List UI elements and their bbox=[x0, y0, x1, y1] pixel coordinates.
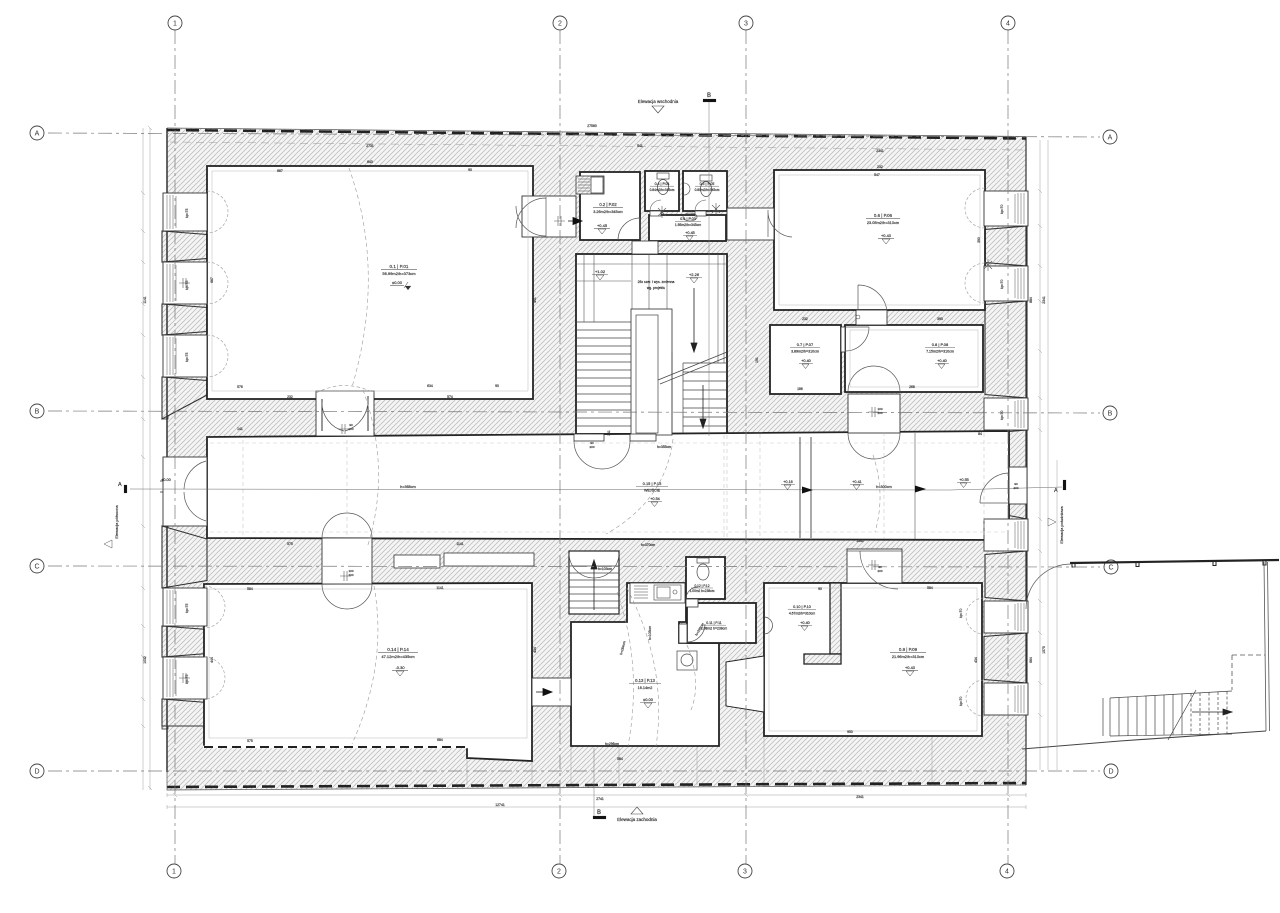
svg-text:0.80m2/h=345cm: 0.80m2/h=345cm bbox=[695, 188, 720, 192]
svg-text:200: 200 bbox=[877, 411, 882, 415]
svg-text:B: B bbox=[597, 810, 601, 816]
svg-text:±0.00: ±0.00 bbox=[392, 280, 403, 285]
svg-text:90: 90 bbox=[818, 587, 822, 591]
svg-text:0.10 | P.10: 0.10 | P.10 bbox=[793, 605, 811, 609]
svg-text:1141: 1141 bbox=[436, 586, 443, 590]
svg-text:1.95m2/h=345cm: 1.95m2/h=345cm bbox=[675, 223, 701, 227]
svg-text:kp=70: kp=70 bbox=[959, 609, 963, 618]
svg-text:0.14 | P.14: 0.14 | P.14 bbox=[387, 647, 409, 652]
svg-text:0.5 | P.05: 0.5 | P.05 bbox=[700, 182, 715, 186]
svg-text:191: 191 bbox=[755, 357, 759, 363]
svg-text:47.12m2/h=435cm: 47.12m2/h=435cm bbox=[381, 654, 415, 659]
svg-text:A: A bbox=[1054, 488, 1058, 494]
svg-text:h=296cm: h=296cm bbox=[605, 742, 619, 746]
svg-text:+0.40: +0.40 bbox=[881, 233, 892, 238]
svg-text:390: 390 bbox=[977, 237, 981, 243]
svg-text:186: 186 bbox=[797, 387, 803, 391]
svg-text:575: 575 bbox=[247, 739, 253, 743]
svg-text:12741: 12741 bbox=[495, 803, 505, 807]
svg-text:0.6 | P.06: 0.6 | P.06 bbox=[874, 213, 893, 218]
svg-text:0.84m2/h=345cm: 0.84m2/h=345cm bbox=[650, 188, 675, 192]
svg-text:268: 268 bbox=[909, 385, 915, 389]
svg-text:2: 2 bbox=[558, 21, 562, 28]
svg-text:884: 884 bbox=[1029, 297, 1033, 303]
svg-text:2: 2 bbox=[557, 869, 561, 876]
svg-text:84: 84 bbox=[978, 432, 982, 436]
svg-text:0.15 | P.15: 0.15 | P.15 bbox=[643, 481, 663, 486]
svg-text:3.26m2/h=345cm: 3.26m2/h=345cm bbox=[593, 210, 622, 214]
svg-text:2341: 2341 bbox=[876, 149, 884, 153]
svg-text:7.15m2/h=310cm: 7.15m2/h=310cm bbox=[926, 350, 954, 354]
svg-text:Elewacja północna: Elewacja północna bbox=[114, 505, 119, 539]
svg-text:4.67m2/h=310cm: 4.67m2/h=310cm bbox=[789, 612, 815, 616]
svg-text:21.96m2/h=310cm: 21.96m2/h=310cm bbox=[892, 654, 924, 659]
svg-text:kp=75: kp=75 bbox=[185, 209, 189, 218]
svg-text:232: 232 bbox=[802, 317, 808, 321]
svg-text:0.4 | P.04: 0.4 | P.04 bbox=[655, 182, 670, 186]
svg-text:16.14m2: 16.14m2 bbox=[638, 686, 653, 690]
svg-text:kp=75: kp=75 bbox=[185, 281, 189, 290]
svg-text:wg. projektu: wg. projektu bbox=[647, 286, 665, 290]
svg-text:2741: 2741 bbox=[596, 797, 604, 801]
svg-text:+2.26: +2.26 bbox=[689, 272, 700, 277]
svg-text:±0.00: ±0.00 bbox=[161, 478, 170, 482]
svg-text:h=300cm: h=300cm bbox=[876, 485, 892, 489]
svg-text:1141: 1141 bbox=[143, 296, 147, 303]
svg-text:584: 584 bbox=[617, 757, 623, 761]
svg-text:A: A bbox=[35, 131, 40, 138]
svg-text:kp=70: kp=70 bbox=[1000, 205, 1004, 214]
svg-text:kp=70: kp=70 bbox=[1000, 411, 1004, 420]
svg-text:200: 200 bbox=[589, 445, 594, 449]
svg-text:B: B bbox=[707, 93, 711, 99]
svg-text:434: 434 bbox=[533, 647, 537, 653]
svg-text:kp=75: kp=75 bbox=[185, 604, 189, 613]
svg-text:584: 584 bbox=[247, 587, 253, 591]
svg-text:h=355cm: h=355cm bbox=[657, 445, 671, 449]
svg-text:0.3 | P.03: 0.3 | P.03 bbox=[680, 217, 696, 221]
svg-text:3: 3 bbox=[744, 21, 748, 28]
svg-text:950: 950 bbox=[847, 730, 853, 734]
svg-text:1.00m2 h=238cm: 1.00m2 h=238cm bbox=[690, 589, 715, 593]
svg-text:640: 640 bbox=[367, 160, 373, 164]
svg-text:4: 4 bbox=[1006, 21, 1010, 28]
svg-text:1: 1 bbox=[172, 869, 176, 876]
svg-text:h=370cm: h=370cm bbox=[641, 543, 655, 547]
svg-text:574: 574 bbox=[447, 395, 453, 399]
svg-text:1: 1 bbox=[173, 21, 177, 28]
svg-text:3: 3 bbox=[743, 869, 747, 876]
svg-text:0.1 | P.01: 0.1 | P.01 bbox=[390, 264, 409, 269]
svg-text:+0.40: +0.40 bbox=[800, 621, 810, 625]
svg-text:+0.40: +0.40 bbox=[801, 359, 811, 363]
svg-text:232: 232 bbox=[287, 395, 293, 399]
svg-text:90: 90 bbox=[468, 168, 472, 172]
svg-text:4: 4 bbox=[1005, 869, 1009, 876]
svg-text:232: 232 bbox=[877, 165, 883, 169]
svg-text:Elewacja południowa: Elewacja południowa bbox=[1059, 506, 1064, 544]
svg-text:200: 200 bbox=[877, 569, 882, 573]
svg-text:441: 441 bbox=[533, 297, 537, 303]
svg-text:0.12 | P.12: 0.12 | P.12 bbox=[695, 584, 710, 588]
svg-text:A: A bbox=[1108, 135, 1113, 142]
svg-text:C: C bbox=[1108, 565, 1113, 572]
svg-text:1141: 1141 bbox=[456, 542, 463, 546]
svg-text:667: 667 bbox=[277, 169, 283, 173]
svg-text:1575: 1575 bbox=[1042, 646, 1046, 654]
svg-text:434: 434 bbox=[974, 657, 978, 663]
svg-text:0.11 | P.11: 0.11 | P.11 bbox=[706, 621, 722, 625]
svg-text:0.9 | P.09: 0.9 | P.09 bbox=[899, 647, 918, 652]
svg-text:B: B bbox=[1108, 411, 1113, 418]
svg-text:±0.00: ±0.00 bbox=[643, 697, 654, 702]
svg-text:kp=75: kp=75 bbox=[185, 353, 189, 362]
svg-text:90: 90 bbox=[495, 384, 499, 388]
svg-text:200: 200 bbox=[348, 427, 353, 431]
svg-text:664: 664 bbox=[1029, 657, 1033, 663]
svg-text:2.08m2 h=238cm: 2.08m2 h=238cm bbox=[701, 627, 727, 631]
svg-text:+0.41: +0.41 bbox=[852, 480, 862, 484]
svg-text:+0.40: +0.40 bbox=[937, 359, 947, 363]
svg-text:h=103cm: h=103cm bbox=[598, 567, 612, 571]
svg-text:+0.55: +0.55 bbox=[959, 478, 969, 482]
svg-text:1541: 1541 bbox=[856, 539, 864, 543]
svg-text:A: A bbox=[118, 482, 122, 488]
svg-text:C: C bbox=[34, 564, 39, 571]
svg-text:634: 634 bbox=[427, 384, 433, 388]
svg-text:2731: 2731 bbox=[366, 144, 374, 148]
svg-text:576: 576 bbox=[237, 385, 243, 389]
svg-text:0.8 | P.08: 0.8 | P.08 bbox=[932, 342, 949, 347]
svg-text:667: 667 bbox=[210, 277, 214, 283]
svg-text:141: 141 bbox=[607, 430, 611, 436]
svg-text:Elewacja zachodnia: Elewacja zachodnia bbox=[617, 817, 657, 822]
svg-text:WEJŚCIE: WEJŚCIE bbox=[644, 487, 661, 492]
svg-text:23.05m2/h=310cm: 23.05m2/h=310cm bbox=[867, 220, 899, 225]
svg-text:h=368cm: h=368cm bbox=[400, 485, 416, 489]
svg-text:200: 200 bbox=[348, 573, 353, 577]
svg-text:584: 584 bbox=[927, 586, 933, 590]
svg-text:444: 444 bbox=[210, 657, 214, 663]
svg-text:541: 541 bbox=[637, 144, 643, 148]
svg-text:141: 141 bbox=[237, 427, 243, 431]
svg-text:27580: 27580 bbox=[587, 124, 597, 128]
svg-text:+0.40: +0.40 bbox=[905, 665, 916, 670]
svg-text:200: 200 bbox=[1013, 486, 1018, 490]
svg-text:h=105cm: h=105cm bbox=[648, 626, 652, 640]
svg-text:56.99m2/h=373cm: 56.99m2/h=373cm bbox=[382, 271, 416, 276]
svg-text:0.13 | P.13: 0.13 | P.13 bbox=[635, 678, 655, 683]
svg-text:547: 547 bbox=[874, 173, 880, 177]
svg-text:393: 393 bbox=[937, 317, 943, 321]
svg-text:B: B bbox=[35, 409, 40, 416]
svg-text:+0.45: +0.45 bbox=[597, 223, 608, 228]
svg-text:Elewacja wschodnia: Elewacja wschodnia bbox=[638, 99, 679, 104]
svg-text:kp=75: kp=75 bbox=[185, 675, 189, 684]
svg-text:1032: 1032 bbox=[143, 656, 147, 664]
svg-text:0.7 | P.07: 0.7 | P.07 bbox=[797, 342, 814, 347]
svg-text:kp=70: kp=70 bbox=[959, 697, 963, 706]
svg-text:684: 684 bbox=[437, 738, 443, 742]
svg-text:kp=70: kp=70 bbox=[1000, 280, 1004, 289]
svg-text:+1.02: +1.02 bbox=[595, 269, 606, 274]
svg-text:D: D bbox=[1108, 769, 1113, 776]
svg-text:3.89m2/h=310cm: 3.89m2/h=310cm bbox=[791, 350, 819, 354]
svg-text:-0.30: -0.30 bbox=[395, 665, 405, 670]
svg-text:2341: 2341 bbox=[856, 795, 864, 799]
svg-text:575: 575 bbox=[287, 542, 293, 546]
svg-text:2341: 2341 bbox=[1042, 296, 1046, 304]
svg-text:0.2 | P.02: 0.2 | P.02 bbox=[599, 202, 617, 207]
svg-text:+0.45: +0.45 bbox=[685, 231, 695, 235]
svg-text:26x szer. i wys. zmienna: 26x szer. i wys. zmienna bbox=[638, 280, 675, 284]
svg-text:D: D bbox=[34, 769, 39, 776]
svg-text:+0.54: +0.54 bbox=[650, 497, 660, 501]
svg-text:+0.16: +0.16 bbox=[783, 480, 793, 484]
